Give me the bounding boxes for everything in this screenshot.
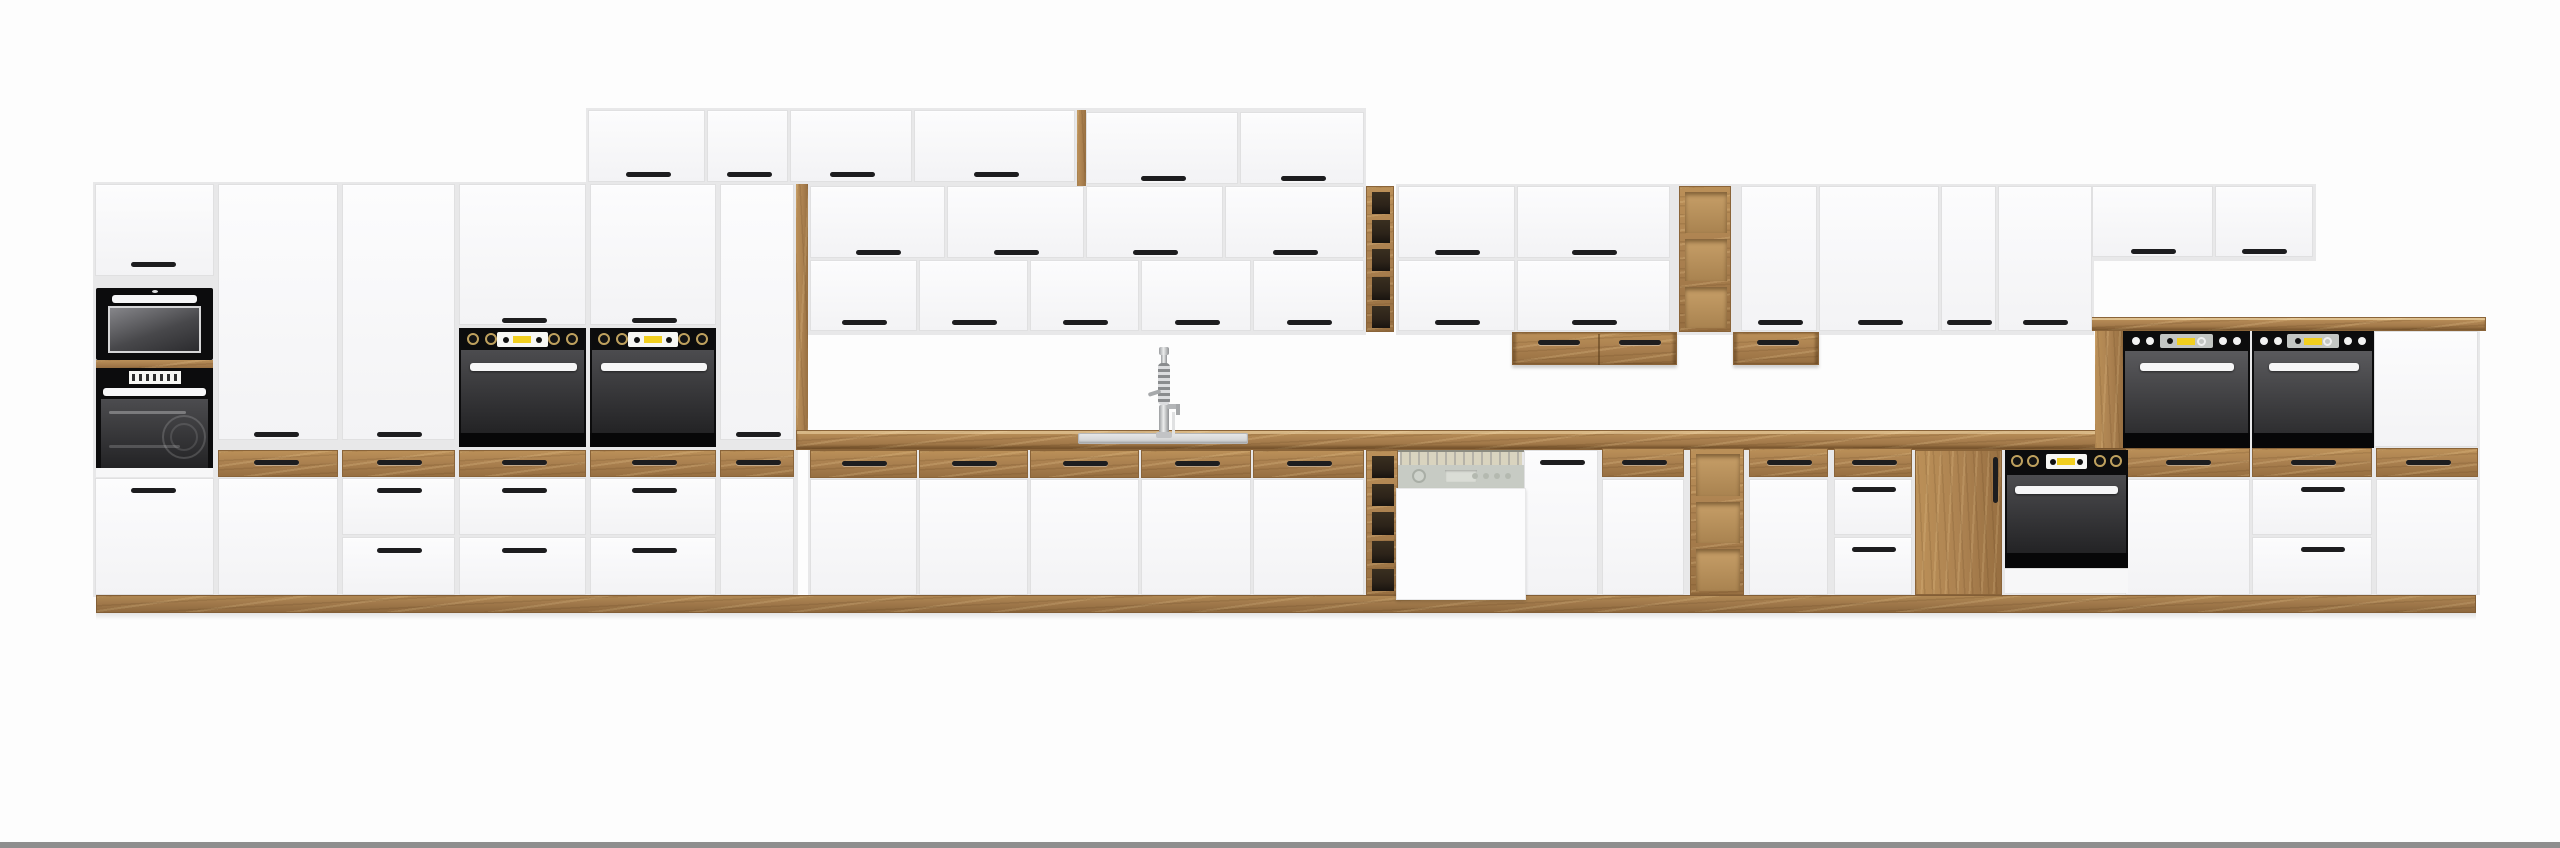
cabinet-front (919, 479, 1028, 595)
built-in-oven (96, 368, 213, 477)
oven-door-glass (461, 350, 584, 433)
built-in-oven (590, 328, 716, 447)
cabinet-handle (842, 320, 887, 325)
cabinet-handle (632, 488, 677, 493)
cabinet-handle (2242, 249, 2287, 254)
cabinet-handle (1758, 320, 1803, 325)
cabinet-handle (1572, 320, 1617, 325)
dishwasher-button (1505, 473, 1511, 479)
oven-handle-bar (470, 363, 577, 371)
cabinet-handle (1858, 320, 1903, 325)
control-knob (696, 333, 708, 345)
cabinet-front (790, 110, 912, 182)
wood-cabinet-door (1915, 450, 2002, 595)
cabinet-handle (727, 172, 772, 177)
cabinet-handle (502, 548, 547, 553)
oven-door-glass (592, 350, 714, 433)
control-knob (485, 333, 497, 345)
cabinet-handle (1435, 250, 1480, 255)
oven-bottom-band (2005, 553, 2128, 568)
shelf-compartment (1372, 484, 1394, 506)
dishwasher-button (1472, 473, 1478, 479)
indicator-yellow (2177, 338, 2195, 345)
cabinet-handle (632, 318, 677, 323)
cabinet-front (459, 537, 586, 595)
cabinet-front (1834, 479, 1912, 535)
cabinet-front (1253, 260, 1364, 331)
cabinet-handle (1133, 250, 1178, 255)
built-in-microwave (96, 288, 213, 360)
soap-dispenser (1172, 412, 1175, 435)
cabinet-handle (994, 250, 1039, 255)
cabinet-handle (377, 548, 422, 553)
wood-drawer-front (1141, 450, 1251, 478)
oven-handle-bar (2015, 486, 2118, 494)
dishwasher (1398, 450, 1524, 600)
cabinet-front (590, 478, 716, 535)
faucet-spring-coil (1158, 363, 1170, 405)
cabinet-front (947, 186, 1084, 258)
control-knob (467, 333, 479, 345)
microwave-handle-bar (112, 295, 197, 303)
cabinet-front (218, 184, 338, 440)
cabinet-front (95, 478, 214, 595)
indicator-dot (2050, 459, 2056, 465)
indicator-dot (666, 337, 672, 343)
cabinet-handle (842, 461, 887, 466)
open-shelf-unit (1679, 186, 1731, 332)
cabinet-front (342, 478, 455, 535)
cabinet-front (1253, 479, 1364, 595)
cabinet-handle (1852, 547, 1896, 552)
oven-shelf-glint (109, 411, 186, 414)
cabinet-handle (1281, 176, 1326, 181)
cabinet-front (342, 184, 455, 440)
faucet-spout-nozzle (1176, 404, 1180, 415)
indicator-dot (634, 337, 640, 343)
control-knob (2011, 455, 2023, 467)
indicator-dot (503, 337, 509, 343)
cabinet-handle (1540, 460, 1585, 465)
oven-handle-bar (2269, 363, 2359, 371)
cabinet-handle (254, 460, 299, 465)
faucet-top-cap (1159, 347, 1169, 355)
oven-plinth-strip (2005, 568, 2128, 593)
cabinet-front (1998, 186, 2092, 331)
shelf-compartment (1372, 249, 1390, 271)
cabinet-handle (1175, 320, 1220, 325)
oven-handle-bar (103, 388, 206, 396)
built-in-oven (2252, 331, 2374, 448)
cabinet-handle (1852, 460, 1897, 465)
cabinet-front (2374, 331, 2478, 447)
cabinet-front (1524, 450, 1598, 595)
wood-drawer-front (2376, 448, 2478, 477)
indicator-yellow (513, 336, 531, 343)
cabinet-handle (1175, 461, 1220, 466)
cabinet-front (810, 186, 945, 258)
cabinet-handle (1287, 320, 1332, 325)
cabinet-front (2092, 186, 2213, 257)
cabinet-handle (1993, 457, 1998, 503)
drawer-seam (1598, 334, 1600, 365)
wood-drawer-front (342, 450, 455, 477)
display-segments (132, 374, 178, 381)
wood-trim (96, 360, 213, 368)
oven-bottom-band (2123, 433, 2250, 448)
indicator-yellow (644, 336, 662, 343)
shelf-compartment (1372, 456, 1394, 478)
cabinet-front (1941, 186, 1996, 331)
wood-drawer-front (720, 450, 794, 477)
wood-drawer-front (1749, 448, 1828, 477)
wood-side-panel (1077, 110, 1086, 186)
cabinet-handle (377, 432, 422, 437)
cabinet-handle (2406, 460, 2451, 465)
shelf-compartment (1372, 277, 1390, 299)
dishwasher-button (1483, 473, 1489, 479)
cabinet-front (1398, 186, 1515, 258)
control-knob (678, 333, 690, 345)
microwave-window (108, 306, 201, 353)
dishwasher-button (1494, 473, 1500, 479)
floor-shadow (96, 613, 2476, 620)
cabinet-handle (1947, 320, 1992, 325)
control-button (2233, 337, 2241, 345)
cabinet-front (1225, 186, 1364, 258)
shelf-compartment (1685, 287, 1727, 328)
control-button (2132, 337, 2140, 345)
wood-side-panel (796, 184, 808, 430)
shelf-compartment (1372, 220, 1390, 242)
cabinet-front (1141, 260, 1251, 331)
cabinet-handle (1141, 176, 1186, 181)
wood-drawer-front (1030, 450, 1139, 478)
wood-drawer-front (1834, 448, 1912, 477)
cabinet-handle (1852, 487, 1896, 492)
dishwasher-knob (1412, 469, 1426, 483)
oven-display (2160, 334, 2213, 348)
microwave-latch (152, 290, 158, 293)
wood-drawer-front (2125, 448, 2250, 477)
cabinet-handle (2301, 547, 2345, 552)
cabinet-front (2376, 479, 2478, 595)
oven-door-glass (2125, 351, 2248, 433)
cabinet-handle (830, 172, 875, 177)
indicator-yellow (2057, 458, 2075, 465)
cabinet-front (919, 260, 1028, 331)
indicator-yellow (2304, 338, 2322, 345)
oven-bottom-strip (96, 468, 213, 477)
shelf-compartment (1372, 306, 1390, 328)
cabinet-handle (1622, 460, 1667, 465)
wood-drawer-front (218, 450, 338, 477)
cabinet-handle (736, 460, 781, 465)
cabinet-front (1086, 112, 1238, 184)
oven-display (497, 332, 548, 347)
cabinet-front (1819, 186, 1939, 331)
control-knob (2110, 455, 2122, 467)
cabinet-handle (1287, 461, 1332, 466)
cabinet-front (590, 537, 716, 595)
cabinet-front (1398, 260, 1515, 331)
oven-bottom-band (2252, 433, 2374, 448)
cabinet-front (95, 184, 214, 276)
cabinet-front (1030, 479, 1139, 595)
indicator-dot (536, 337, 542, 343)
cabinet-handle (632, 460, 677, 465)
oven-door-glass (101, 399, 208, 468)
cabinet-handle (856, 250, 901, 255)
cabinet-front (459, 184, 586, 325)
cabinet-handle (502, 318, 547, 323)
convection-fan-inner (170, 423, 198, 451)
cabinet-handle (626, 172, 671, 177)
wood-drawer-front (1253, 450, 1364, 478)
cabinet-front (707, 110, 788, 182)
shelf-compartment (1685, 192, 1727, 233)
control-knob (548, 333, 560, 345)
cabinet-front (2252, 479, 2372, 535)
oven-display (129, 371, 181, 384)
cabinet-handle (2131, 249, 2176, 254)
cabinet-handle (1435, 320, 1480, 325)
control-knob (566, 333, 578, 345)
oven-display (2046, 454, 2088, 469)
cabinet-front (1517, 260, 1670, 331)
open-shelf-unit (1690, 448, 1744, 595)
wood-drawer-front (919, 450, 1028, 478)
cabinet-handle (2301, 487, 2345, 492)
control-knob (616, 333, 628, 345)
shelf-compartment (1696, 549, 1740, 591)
cabinet-handle (131, 488, 176, 493)
cabinet-handle (131, 262, 176, 267)
cabinet-front (720, 478, 794, 595)
cabinet-front (810, 260, 917, 331)
cabinet-front (1030, 260, 1139, 331)
cabinet-handle (1063, 320, 1108, 325)
oven-display (628, 332, 678, 347)
cabinet-front (1834, 537, 1912, 595)
control-button (2274, 337, 2282, 345)
wood-top-panel (2090, 317, 2486, 331)
cabinet-handle (377, 488, 422, 493)
cabinet-front (914, 110, 1075, 182)
built-in-oven (459, 328, 586, 447)
cabinet-front (1517, 186, 1670, 258)
indicator-ring (2197, 337, 2206, 346)
cabinet-front (810, 479, 917, 595)
cabinet-handle (952, 461, 997, 466)
wood-drawer-front (590, 450, 716, 477)
oven-door-glass (2007, 475, 2126, 553)
indicator-dot (2295, 338, 2301, 344)
cabinet-handle (2023, 320, 2068, 325)
cabinet-handle (1619, 340, 1661, 345)
shelf-compartment (1372, 541, 1394, 563)
shelf-compartment (1685, 239, 1727, 280)
cabinet-front (2125, 479, 2250, 595)
cabinet-handle (377, 460, 422, 465)
control-button (2358, 337, 2366, 345)
cabinet-handle (1273, 250, 1318, 255)
cabinet-front (1240, 112, 1364, 184)
cabinet-handle (736, 432, 781, 437)
dishwasher-interior (1400, 452, 1522, 465)
indicator-ring (2323, 337, 2332, 346)
built-in-oven (2123, 331, 2250, 448)
wood-drawer-front (1602, 448, 1684, 477)
countertop (796, 430, 2130, 450)
wood-side-panel (2095, 331, 2123, 448)
built-in-oven (2005, 450, 2128, 593)
shelf-compartment (1372, 192, 1390, 214)
oven-handle-bar (601, 363, 707, 371)
cabinet-handle (1538, 340, 1580, 345)
cabinet-front (2215, 186, 2313, 257)
cabinet-front (342, 537, 455, 595)
shelf-compartment (1372, 512, 1394, 534)
control-knob (2094, 455, 2106, 467)
cabinet-front (1741, 186, 1817, 331)
shelf-compartment (1696, 502, 1740, 544)
cabinet-front (1141, 479, 1251, 595)
plinth-kickboard (96, 595, 2476, 613)
cabinet-front (1086, 186, 1223, 258)
cabinet-handle (952, 320, 997, 325)
control-knob (598, 333, 610, 345)
control-button (2219, 337, 2227, 345)
wine-rack-column (1366, 186, 1394, 332)
cabinet-handle (1063, 461, 1108, 466)
cabinet-handle (1757, 340, 1799, 345)
cabinet-handle (974, 172, 1019, 177)
indicator-dot (2077, 459, 2083, 465)
wall-hung-wood-drawer-box (1512, 332, 1677, 365)
shelf-compartment (1696, 454, 1740, 496)
control-knob (2027, 455, 2039, 467)
wine-rack-column (1366, 450, 1398, 595)
cabinet-handle (502, 460, 547, 465)
cabinet-handle (1767, 460, 1812, 465)
cabinet-handle (2291, 460, 2336, 465)
wood-drawer-front (2252, 448, 2372, 477)
oven-display (2287, 334, 2338, 348)
cabinet-handle (502, 488, 547, 493)
dishwasher-door-panel (1396, 488, 1526, 600)
cabinet-front (720, 184, 794, 440)
shelf-compartment (1372, 569, 1394, 591)
dishwasher-control-strip (1398, 465, 1524, 488)
control-button (2146, 337, 2154, 345)
cabinet-front (2252, 537, 2372, 595)
cabinet-handle (632, 548, 677, 553)
cabinet-handle (254, 432, 299, 437)
indicator-dot (2167, 338, 2173, 344)
kitchen-set-product-image (0, 0, 2560, 848)
cabinet-handle (1572, 250, 1617, 255)
cabinet-front (459, 478, 586, 535)
oven-handle-bar (2140, 363, 2234, 371)
wood-drawer-front (810, 450, 917, 478)
bottom-page-strip (0, 842, 2560, 848)
oven-bottom-band (459, 433, 586, 447)
cabinet-front (218, 478, 338, 595)
cabinet-front (1749, 479, 1828, 595)
faucet-base (1156, 432, 1172, 438)
wood-drawer-front (459, 450, 586, 477)
cabinet-front (590, 184, 716, 325)
oven-door-glass (2254, 351, 2372, 433)
cabinet-front (1602, 479, 1684, 595)
control-button (2344, 337, 2352, 345)
cabinet-handle (2166, 460, 2211, 465)
cabinet-front (588, 110, 705, 182)
wall-hung-wood-drawer-box (1733, 332, 1819, 365)
control-button (2260, 337, 2268, 345)
oven-bottom-band (590, 433, 716, 447)
